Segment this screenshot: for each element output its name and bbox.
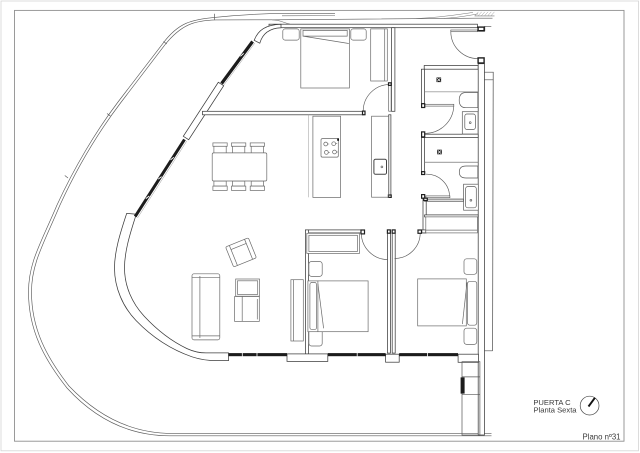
svg-text:Plano nº31: Plano nº31 bbox=[583, 432, 621, 441]
svg-text:Planta Sexta: Planta Sexta bbox=[533, 406, 577, 415]
